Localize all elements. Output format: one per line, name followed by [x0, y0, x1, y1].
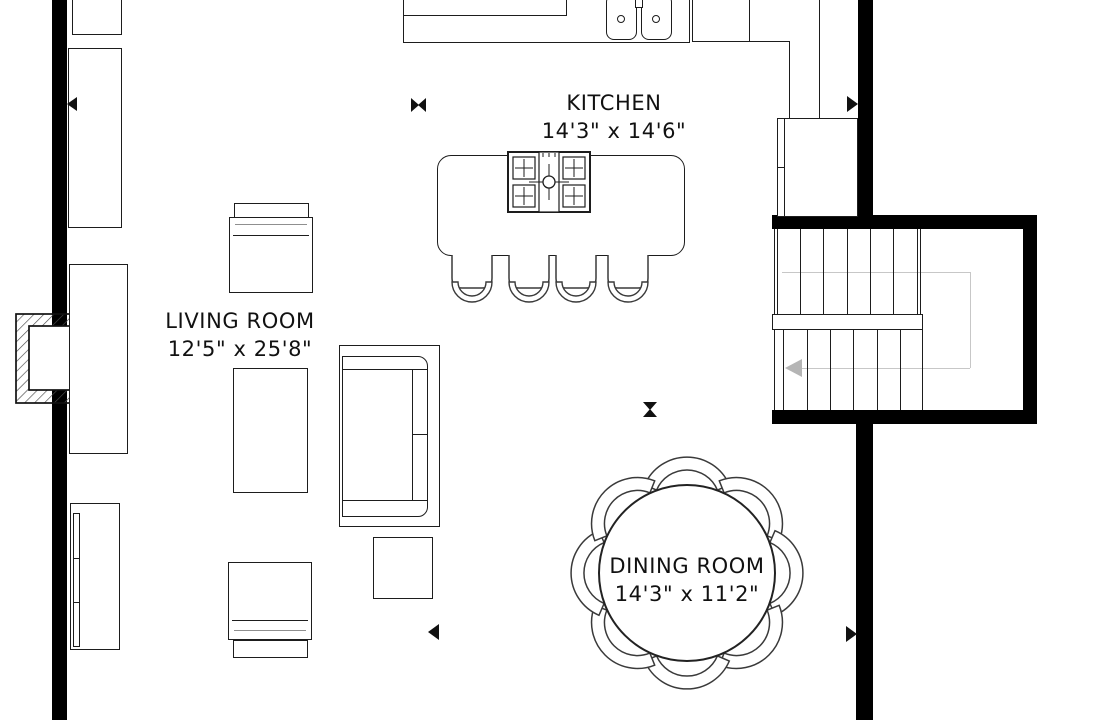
stair-tread [800, 229, 801, 315]
stair-guide-line [782, 272, 970, 273]
bar-stool [505, 255, 553, 303]
living-room-label: LIVING ROOM 12'5" x 25'8" [90, 307, 390, 363]
room-dims: 14'3" x 14'6" [464, 117, 764, 145]
armchair-bottom [228, 560, 312, 660]
bookshelf-tall [68, 48, 122, 228]
dining-room-label: DINING ROOM 14'3" x 11'2" [537, 552, 837, 608]
armchair-seat-line [233, 235, 309, 236]
counter-step-line [789, 41, 790, 118]
sideboard-shelf-line [73, 558, 80, 559]
bar-stool [552, 255, 600, 303]
cooktop [507, 151, 591, 213]
sofa-inner [342, 356, 428, 517]
wall-dining-right [856, 424, 873, 720]
stair-tread [877, 330, 878, 410]
stair-tread [823, 229, 824, 315]
opening-marker-bottom-left-icon [428, 624, 439, 640]
sofa [339, 345, 440, 527]
opening-marker-left-icon [67, 97, 77, 111]
bar-stool [604, 255, 652, 303]
armchair-top [229, 203, 313, 293]
sofa-arm-line-top [342, 369, 428, 370]
stair-run-edge [920, 229, 921, 315]
sink-drain-left [617, 15, 625, 23]
room-name: LIVING ROOM [90, 307, 390, 335]
armchair-cushion-line [235, 224, 307, 225]
wall-stair-right [1023, 215, 1037, 424]
side-table [373, 537, 433, 599]
stair-landing [772, 314, 923, 330]
fridge-door-line [784, 119, 785, 216]
stair-tread [847, 229, 848, 315]
armchair-body [228, 562, 312, 640]
fridge-door-split [778, 167, 784, 168]
sink-drain-right [652, 15, 660, 23]
opening-marker-right-icon [847, 96, 858, 112]
stair-direction-arrow-icon [785, 359, 802, 377]
stair-run-edge [922, 330, 923, 410]
kitchen-upper-cabinet [403, 0, 567, 16]
wall-stair-top [772, 215, 1037, 229]
fireplace [15, 313, 72, 404]
staircase [772, 229, 1023, 410]
wall-stair-bottom [772, 410, 1037, 424]
armchair-cushion-line [234, 630, 306, 631]
room-name: DINING ROOM [537, 552, 837, 580]
opening-marker-bottom-right-icon [846, 626, 857, 642]
bar-stool [448, 255, 496, 303]
stair-tread [870, 229, 871, 315]
coffee-table [233, 368, 308, 493]
armchair-back [233, 640, 308, 658]
room-dims: 12'5" x 25'8" [90, 335, 390, 363]
stair-tread [807, 330, 808, 410]
sofa-arm-line-bottom [342, 500, 428, 501]
floor-plan: KITCHEN 14'3" x 14'6" LIVING ROOM 12'5" … [0, 0, 1094, 720]
opening-marker-hourglass-icon [643, 402, 657, 417]
pantry-line [819, 0, 820, 118]
dishwasher [692, 0, 750, 42]
stair-tread [893, 229, 894, 315]
stair-tread [900, 330, 901, 410]
stair-tread [830, 330, 831, 410]
stair-tread [783, 330, 784, 410]
armchair-body [229, 217, 313, 293]
armchair-seat-line [232, 620, 308, 621]
stair-tread [917, 229, 918, 315]
stair-tread [777, 229, 778, 315]
stair-guide-line [970, 272, 971, 368]
wall-kitchen-right [858, 0, 873, 229]
sideboard-shelf-line [73, 602, 80, 603]
fridge [777, 118, 858, 217]
sink-faucet [635, 0, 643, 8]
cabinet-top-left [72, 0, 122, 35]
counter-step-line [750, 41, 790, 42]
stair-tread [853, 330, 854, 410]
sofa-cushion-divider [412, 434, 428, 435]
room-dims: 14'3" x 11'2" [537, 580, 837, 608]
opening-marker-bowtie-icon [411, 98, 426, 112]
sideboard-door-panel [73, 513, 80, 647]
hourglass-bottom-half [643, 409, 657, 417]
stair-guide-line [802, 368, 970, 369]
kitchen-label: KITCHEN 14'3" x 14'6" [464, 89, 764, 145]
room-name: KITCHEN [464, 89, 764, 117]
bowtie-right-half [418, 98, 426, 112]
